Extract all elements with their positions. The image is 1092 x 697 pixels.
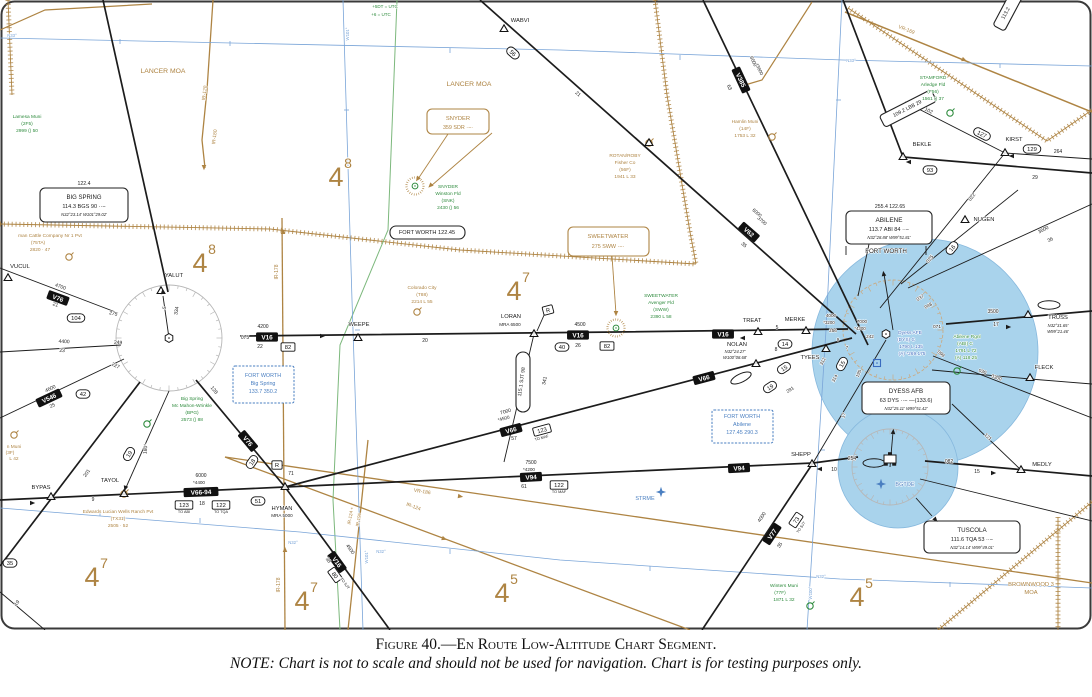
map-label: 22 [257,344,263,350]
svg-text:42: 42 [80,392,86,398]
map-label: TO ABI [178,510,190,514]
map-label: (T88) [416,292,428,298]
map-label: (SWW) [653,307,669,313]
airway-label: V16 [567,330,589,339]
map-label: 111.6 TQA 53 ··− [951,537,993,543]
map-label: 4 [84,562,99,592]
map-label: 26 [575,343,581,349]
map-label: N32° [288,540,298,545]
map-label: Edwards Lucian Wells Ranch Pvt [83,509,154,515]
map-label: Mc Mahon-Wrinkle [172,403,212,409]
map-label: 113.7 ABI 84 ··− [869,227,909,233]
map-label: W99°21.46' [1047,329,1069,334]
map-label: N32°23.14' W101°29.02' [61,212,107,217]
map-label: 4200 [257,324,268,330]
map-label: 264 [1054,149,1063,155]
map-label: Hamlin Muni [732,119,759,125]
map-label: Big Spring [181,396,203,402]
map-label: SWEETWATER [588,234,629,240]
map-label: MERKE [785,317,806,323]
map-label: Abilene Rgnl [953,334,980,340]
page: V16V16V16V16V66V66V94V94V66-94V76V76V546… [0,0,1092,697]
map-label: 15 [974,469,980,475]
airway-label: V66-94 [183,487,218,497]
map-label: 7 [100,555,108,571]
map-label: N32°28.88' W99°51.81' [867,235,911,240]
svg-text:V16: V16 [717,331,729,338]
svg-text:40: 40 [559,345,565,351]
map-label: *4200 [523,467,535,472]
map-label: N32° [376,549,386,554]
map-label: SNYDER [438,184,459,190]
map-label: TO TQA [214,510,228,514]
map-label: 4 [328,162,343,192]
enroute-chart: V16V16V16V16V66V66V94V94V66-94V76V76V546… [0,0,1092,630]
map-label: N33° [846,58,856,63]
map-label: 1753 L 32 [734,133,755,139]
map-label: BYPAS [32,485,51,491]
map-label: STAMFORD [920,75,947,81]
figure-caption: Figure 40.—En Route Low-Altitude Chart S… [0,636,1092,654]
map-label: KIRST [1005,137,1023,143]
map-label: BIG SPRING [66,195,101,201]
vor-center-dot [885,333,887,335]
map-label: 4500 [574,322,585,328]
map-label: 2505 · 52 [108,523,129,529]
map-label: (F56) [927,89,939,95]
map-label: 9 [92,497,95,503]
map-label: 5 [510,571,518,587]
class-airspace-area [838,408,958,528]
map-label: 7 [522,269,530,285]
map-label: TO MAF [552,490,567,494]
map-label: BROWNWOOD 3 [1008,582,1054,588]
map-label: +6 = UTC [371,12,391,17]
map-label: 1561 () 37 [922,96,944,102]
map-label: WEEPE [349,322,370,328]
mileage-shield: 14 [778,340,792,348]
mileage-shield: 82 [281,343,295,351]
mileage-shield: R [272,461,282,469]
map-label: 242 [866,334,874,339]
map-label: 23 [59,348,65,354]
map-label: HYMAN [272,506,293,512]
map-label: 3500 [987,309,998,315]
map-label: 63 DYS ··− —(133.6) [880,398,933,404]
map-label: 254 [848,456,857,462]
map-label: 4 [294,586,309,616]
map-label: (77F) [774,590,786,596]
map-label: 249 [114,340,123,346]
map-label: WABVI [511,18,530,24]
map-label: (SNK) [441,198,454,204]
map-label: L 42 [9,456,18,462]
map-label: 17 [993,322,999,328]
svg-text:V94: V94 [733,465,745,473]
svg-text:123: 123 [179,503,189,509]
mileage-shield: 51 [251,497,265,505]
map-label: DYESS AFB [889,388,923,395]
map-label: MOA [1024,590,1037,596]
map-label: Dyess AFB [898,330,922,336]
map-label: 4400 [58,339,70,346]
map-label: 7 [310,579,318,595]
vortac-icon [884,455,896,463]
svg-text:93: 93 [927,168,933,174]
map-label: 7000 [857,319,868,324]
map-label: 114.3 BGS 90 ··− [62,204,105,210]
map-label: 256 [829,328,837,333]
map-label: N32°25.11' W99°51.42' [884,406,927,411]
map-label: SNYDER [446,116,470,122]
map-label: 7500 [525,460,536,466]
map-label: 1790 L 135 [899,344,923,350]
map-label: 8 [775,347,778,353]
vortac-tab [892,463,896,466]
map-label: 2390 L 58 [650,314,671,320]
map-label: N32°24.27' [725,349,746,354]
map-label: 2573 () 88 [181,417,203,423]
map-label: Winston Fld [435,191,461,197]
map-label: LORAN [501,314,521,320]
map-label: *4300 [854,326,866,331]
map-label: ABILENE [876,217,903,224]
map-label: 122.4 [78,181,91,187]
svg-text:122: 122 [216,503,226,509]
map-label: N32°31.65' [1048,323,1069,328]
map-label: (A) *269.175 [899,351,926,357]
map-label: TYEES [800,355,819,361]
map-label: 8 [208,241,216,257]
mileage-shield: 82 [600,342,614,350]
svg-text:51: 51 [255,499,261,505]
map-label: 2430 () 56 [437,205,459,211]
map-label: *4400 [193,480,205,485]
svg-text:129: 129 [1027,147,1037,153]
map-label: 075 [241,335,250,341]
map-label: VUCUL [10,264,30,270]
mileage-shield: 123 [175,501,193,509]
svg-text:82: 82 [285,345,291,351]
map-label: Colorado City [407,285,437,291]
mileage-shield: 104 [67,314,85,322]
svg-text:104: 104 [71,316,81,322]
map-label: 6000 [195,473,206,479]
map-label: (75TA) [31,240,46,246]
map-label: STRME [635,496,655,502]
map-label: man Cattle Company Nr 1 Pvt [18,233,82,239]
map-label: 359 SDR ·−· [443,125,473,131]
map-label: 4 [849,582,864,612]
mileage-shield: 35 [3,559,17,567]
map-label: 18 [199,501,205,507]
map-label: NOLAN [727,342,747,348]
map-label: 180° [143,443,150,454]
map-label: LANCER MOA [141,68,186,75]
map-label: *3200 [823,320,835,325]
map-label: 8 [344,155,352,171]
airway-label: V94 [520,472,542,482]
map-label: Avenger Fld [648,300,674,306]
svg-text:R: R [275,463,279,469]
svg-text:V16: V16 [572,332,584,339]
map-label: (56F) [619,167,631,173]
map-label: W101° [364,550,369,563]
map-label: 082 [945,459,954,465]
map-label: SWEETWATER [644,293,678,299]
map-label: (2F5) [21,121,33,127]
map-label: (A) 118.25 [955,355,977,361]
map-label: TAYOL [101,478,120,484]
mileage-shield: 93 [923,166,937,174]
map-label: YALUT [165,273,184,279]
map-label: SHEPP [791,452,811,458]
svg-text:82: 82 [604,344,610,350]
map-label: 5 [776,325,779,331]
mileage-shield: 122 [550,481,568,489]
map-label: BEKLE [913,142,932,148]
map-label: (DYS) C [897,337,915,343]
map-label: (BPG) [185,410,199,416]
mileage-shield: 122 [212,501,230,509]
map-label: 61 [521,484,527,490]
map-label: 4 [192,248,207,278]
map-label: 4000 [826,313,837,318]
map-label: 133.7 350.2 [249,389,277,395]
map-label: Lamesa Muni [13,114,42,120]
svg-text:V66-94: V66-94 [191,489,212,497]
airway-label: V16 [712,329,734,338]
map-label: IR-178 [274,264,280,279]
map-label: 2820 · 47 [30,247,51,253]
map-label: n Muni [7,444,21,450]
map-label: Abilene [733,422,751,428]
map-label: LANCER MOA [447,81,492,88]
ndb-center-dot [615,327,616,328]
map-label: N32°14.14' W99°49.01' [950,545,994,550]
map-label: 10 [831,467,837,473]
map-label: (TX31) [111,516,126,522]
map-label: FLECK [1035,365,1054,371]
map-label: FORT WORTH [865,248,907,255]
airway-label: V16 [256,332,278,341]
map-label: FORT WORTH [724,414,760,420]
svg-text:V94: V94 [525,474,537,482]
mileage-shield: 40 [555,343,569,351]
map-label: 57 [511,436,517,442]
airway-label: V94 [728,463,750,473]
map-label: TRUSS [1048,315,1068,321]
map-label: 1871 L 32 [773,597,794,603]
map-label: MRA 6500 [499,322,521,327]
map-label: 275 SWW ·−· [592,244,625,250]
map-label: 20 [422,338,428,344]
svg-text:14: 14 [782,342,789,348]
tacan-center-dot [876,362,878,364]
map-label: +5DT = UTC [372,4,398,9]
map-label: (14F) [739,126,751,132]
map-label: (ABI) C [957,341,973,347]
navaid-info-box [568,227,649,256]
map-label: 1791 L 72 [955,348,976,354]
map-label: BGTOE [895,482,914,488]
vor-center-dot [168,337,170,339]
map-label: (3F) [6,450,15,456]
map-label: TUSCOLA [957,527,987,534]
map-label: Winters Muni [770,583,798,589]
map-label: W100°08.68' [723,355,747,360]
map-label: ROTAN/ROBY [609,153,641,159]
map-label: 29 [1032,175,1038,181]
map-label: 071 [933,324,941,330]
map-label: 4 [506,276,521,306]
map-label: IR-178 [276,577,282,592]
map-label: N32° [816,574,826,579]
map-label: 2999 () 50 [16,128,38,134]
map-label: 255.4 122.65 [875,204,905,210]
svg-text:35: 35 [7,561,13,567]
ndb-center-dot [414,185,415,186]
vortac-tab [888,452,892,455]
map-label: 1941 L 33 [614,174,635,180]
map-label: MEDLY [1032,462,1052,468]
map-label: 127.45 290.3 [726,430,757,436]
map-label: FORT WORTH 122.45 [399,230,455,236]
map-label: 71 [288,471,294,477]
map-label: W101° [345,27,350,40]
map-label: MRA 5000 [271,513,293,518]
map-label: NUGEN [974,217,995,223]
map-label: Arledge Fld [921,82,946,88]
figure-note: NOTE: Chart is not to scale and should n… [0,655,1092,673]
svg-text:122: 122 [554,483,564,489]
mileage-shield: 129 [1023,145,1041,153]
map-label: Big Spring [251,381,276,387]
map-label: Fisher Co [615,160,636,166]
map-label: N33° [7,33,17,38]
vortac-tab [884,463,888,466]
map-label: 4 [494,578,509,608]
svg-text:V16: V16 [261,334,273,341]
map-label: 2214 L 55 [411,299,432,305]
map-label: W100° [808,586,813,599]
map-label: FORT WORTH [245,373,281,379]
map-label: 5 [865,575,873,591]
map-label: TREAT [743,318,762,324]
mileage-shield: 42 [76,390,90,398]
